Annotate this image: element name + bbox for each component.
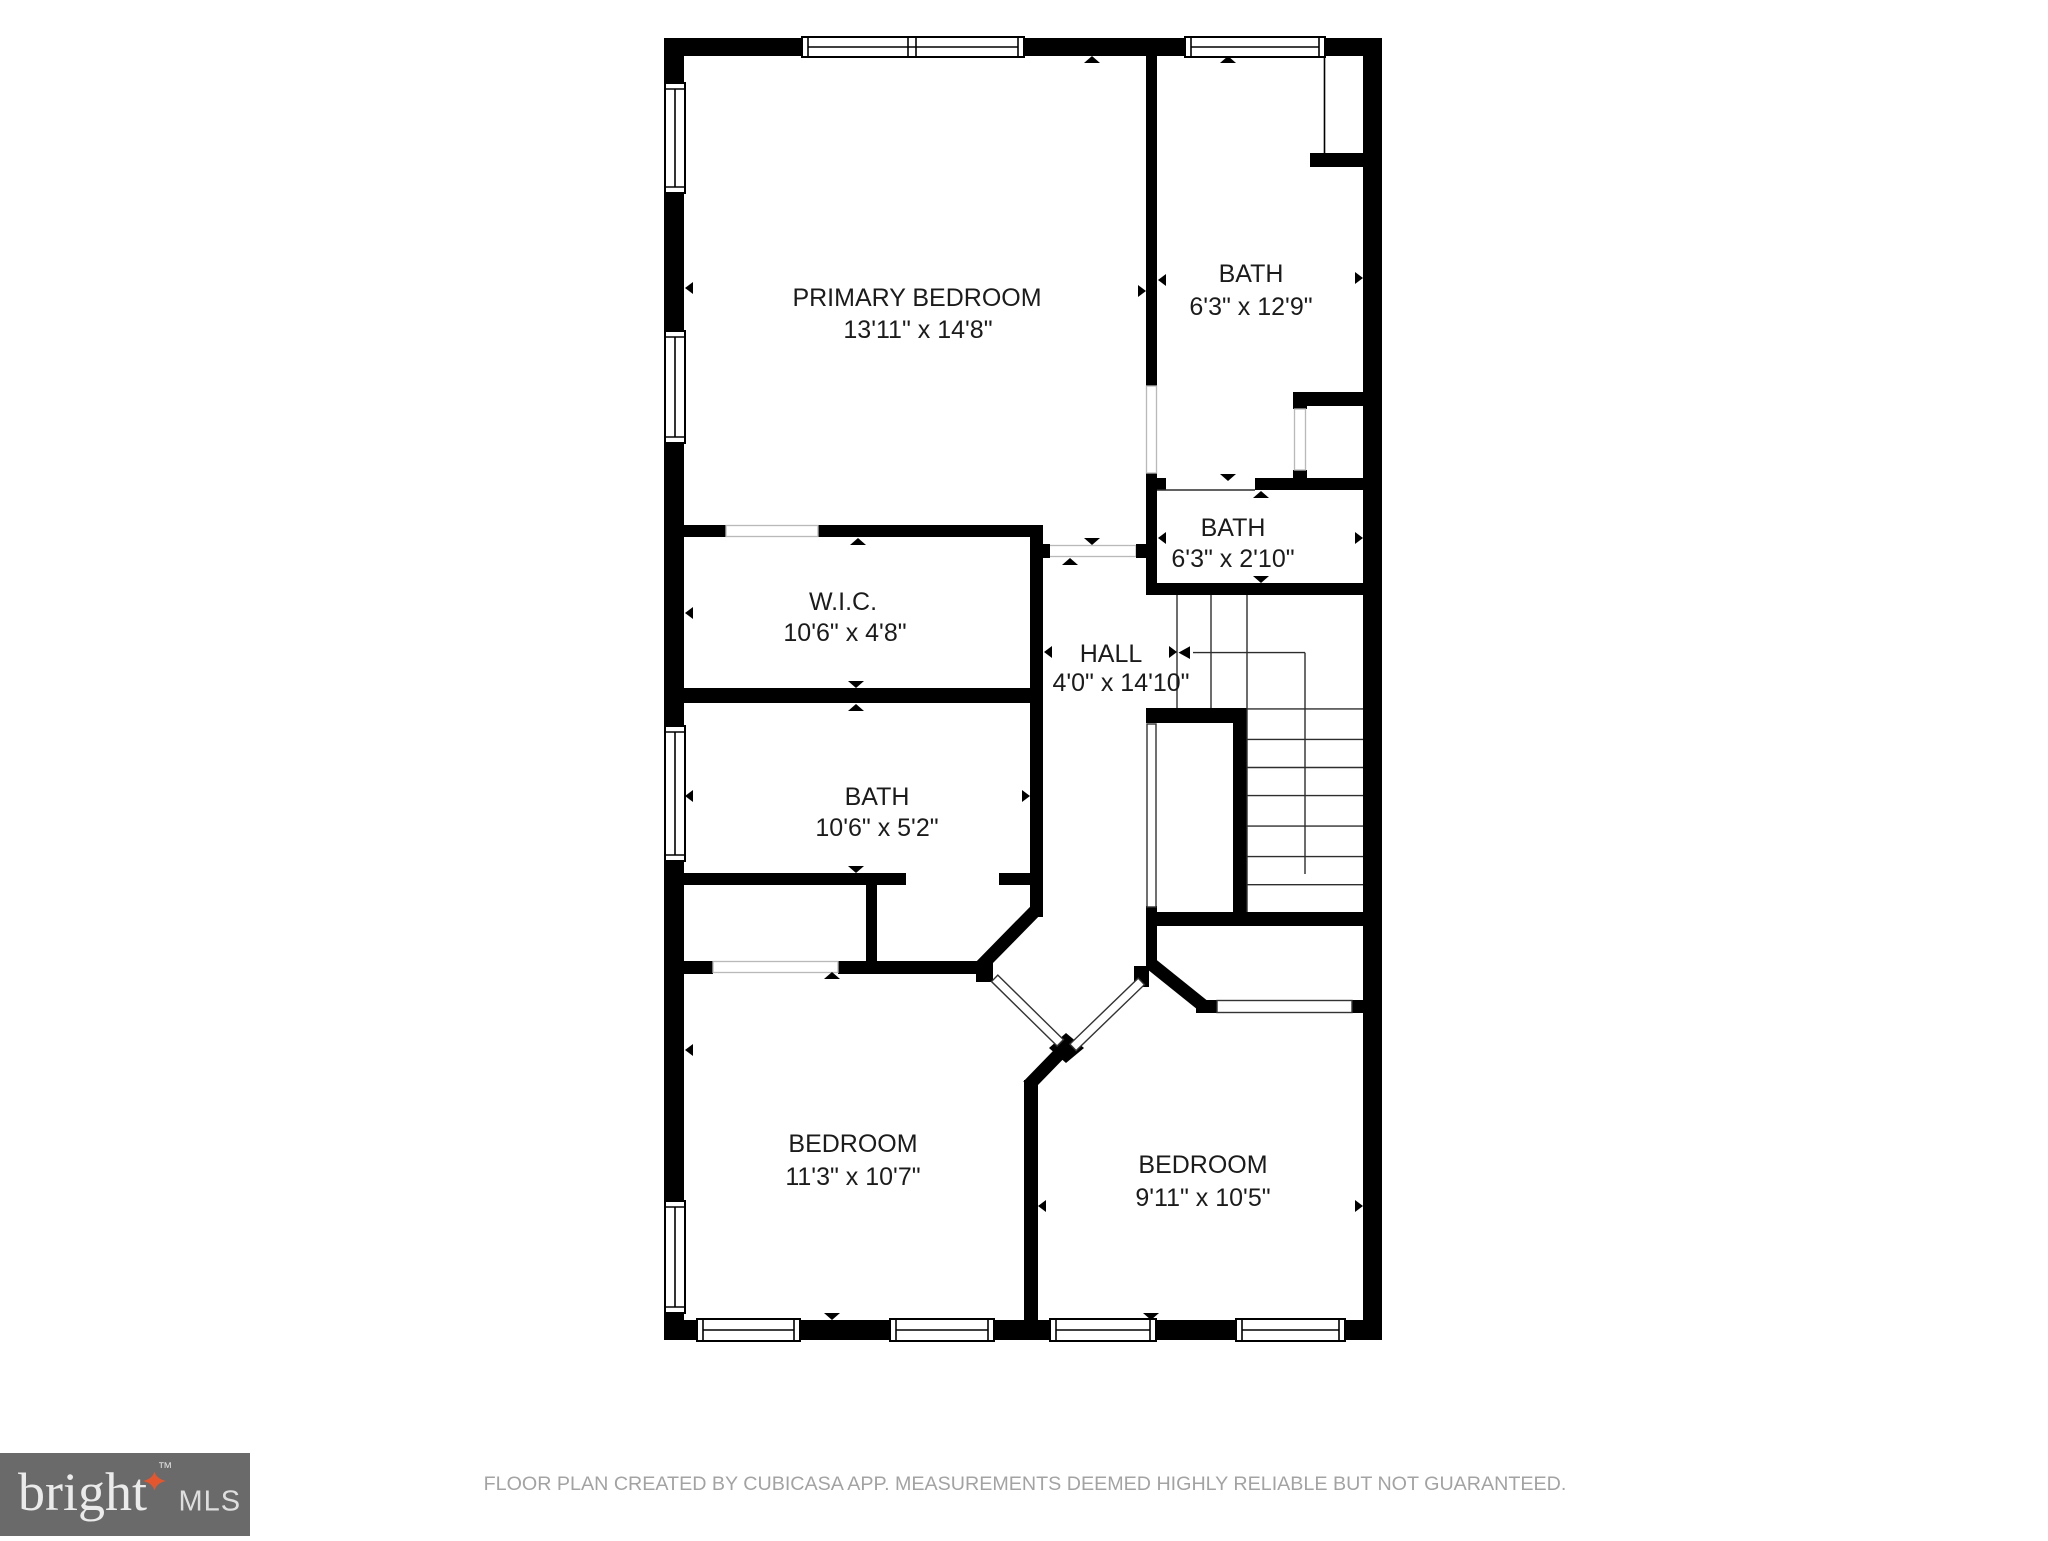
svg-text:W.I.C.: W.I.C. [809, 588, 877, 616]
svg-text:HALL: HALL [1080, 640, 1143, 668]
svg-text:10'6" x 5'2": 10'6" x 5'2" [815, 814, 938, 842]
svg-text:BATH: BATH [1219, 260, 1284, 288]
svg-text:6'3" x 2'10": 6'3" x 2'10" [1171, 545, 1294, 573]
svg-text:BEDROOM: BEDROOM [1138, 1151, 1267, 1179]
svg-text:BATH: BATH [1201, 514, 1266, 542]
svg-text:PRIMARY BEDROOM: PRIMARY BEDROOM [792, 284, 1041, 312]
svg-text:10'6" x 4'8": 10'6" x 4'8" [783, 619, 906, 647]
svg-text:MLS: MLS [179, 1486, 242, 1518]
svg-text:13'11" x 14'8": 13'11" x 14'8" [843, 316, 992, 344]
svg-text:BATH: BATH [845, 783, 910, 811]
svg-text:BEDROOM: BEDROOM [788, 1130, 917, 1158]
svg-text:™: ™ [158, 1460, 173, 1477]
svg-text:bright: bright [18, 1462, 147, 1522]
svg-text:6'3" x 12'9": 6'3" x 12'9" [1189, 293, 1312, 321]
svg-text:11'3" x 10'7": 11'3" x 10'7" [785, 1163, 920, 1191]
svg-text:FLOOR PLAN CREATED BY CUBICASA: FLOOR PLAN CREATED BY CUBICASA APP. MEAS… [484, 1473, 1567, 1495]
svg-text:9'11" x 10'5": 9'11" x 10'5" [1135, 1184, 1270, 1212]
svg-text:4'0" x 14'10": 4'0" x 14'10" [1052, 669, 1189, 697]
